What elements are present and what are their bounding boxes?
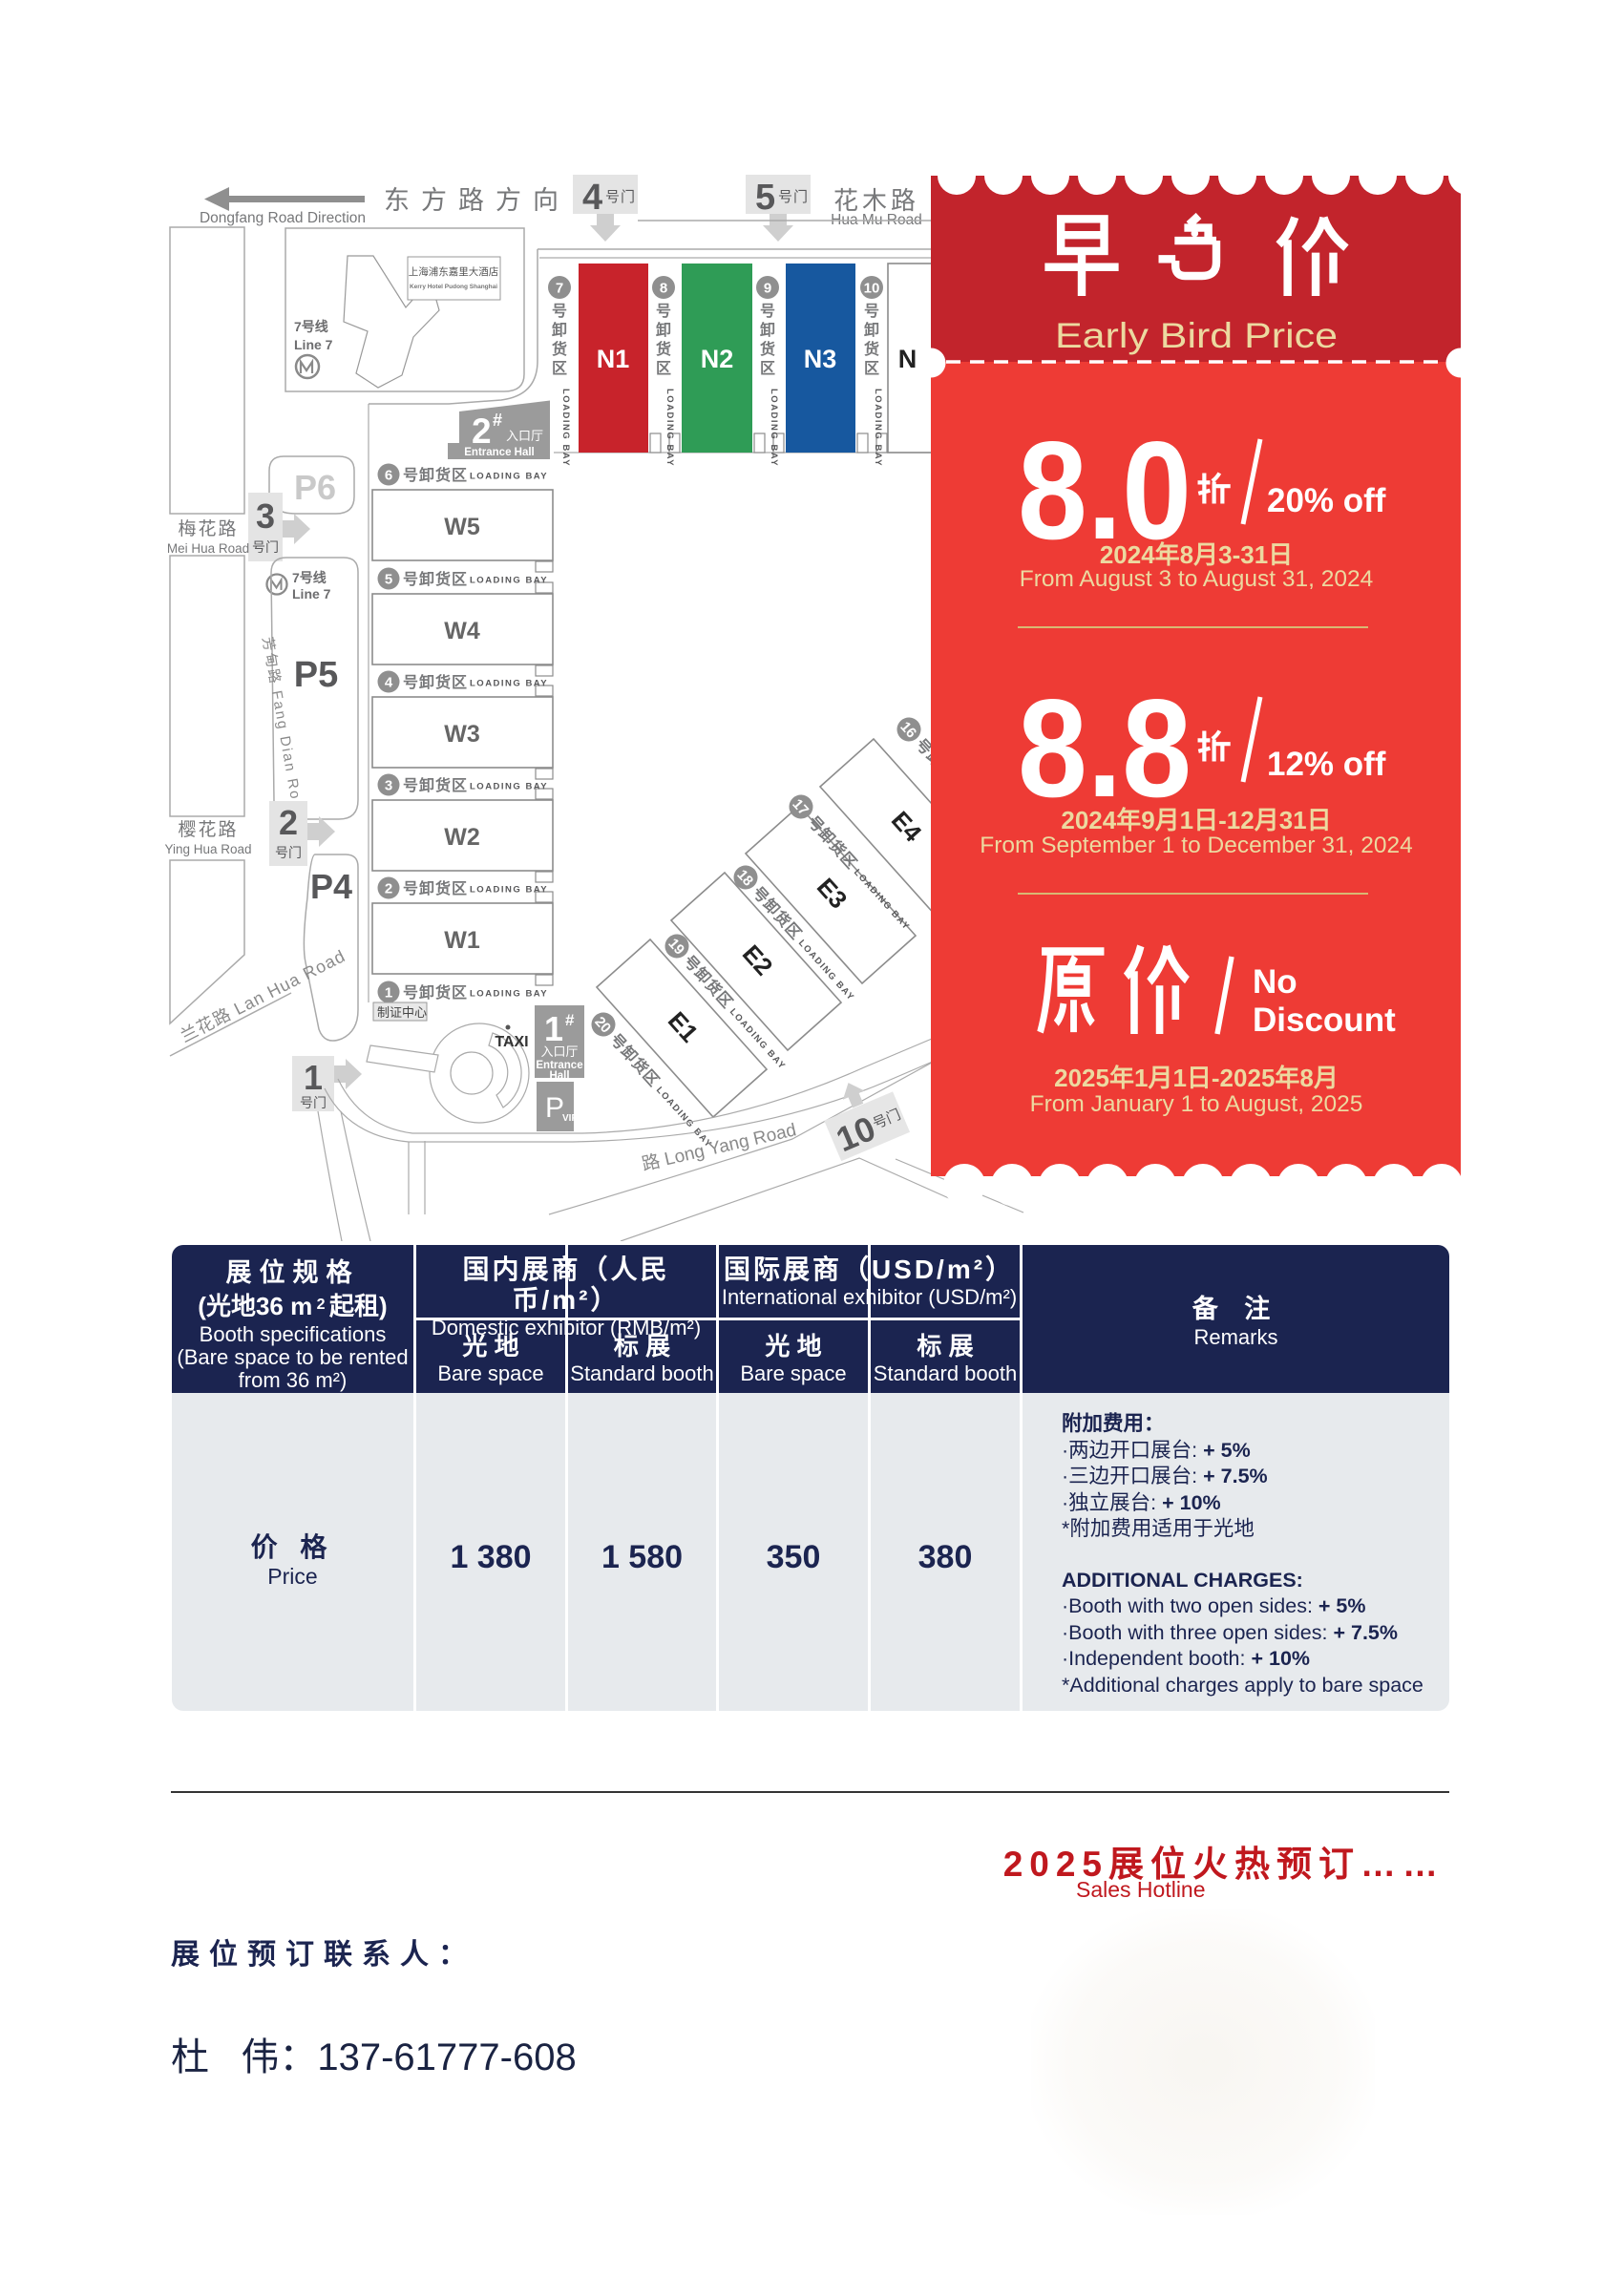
svg-text:N3: N3: [804, 345, 837, 373]
svg-text:4: 4: [385, 675, 393, 691]
svg-text:号卸货区: 号卸货区: [403, 466, 468, 484]
svg-text:7: 7: [556, 281, 563, 297]
svg-text:From September 1 to December 3: From September 1 to December 31, 2024: [980, 833, 1412, 858]
svg-text:7号线: 7号线: [294, 319, 328, 334]
svg-text:卸: 卸: [552, 321, 567, 339]
svg-text:LOADING BAY: LOADING BAY: [664, 389, 675, 467]
svg-text:区: 区: [760, 360, 775, 377]
svg-text:From January 1 to August, 2025: From January 1 to August, 2025: [1030, 1091, 1363, 1117]
svg-text:Mei Hua Road: Mei Hua Road: [167, 541, 249, 556]
svg-text:#: #: [493, 411, 502, 430]
svg-text:P: P: [545, 1092, 564, 1124]
svg-text:Discount: Discount: [1253, 1002, 1396, 1039]
svg-text:5: 5: [385, 572, 392, 588]
svg-text:LOADING BAY: LOADING BAY: [470, 576, 548, 586]
svg-text:LOADING BAY: LOADING BAY: [470, 989, 548, 1000]
svg-text:3: 3: [385, 778, 392, 794]
svg-text:号卸货区: 号卸货区: [403, 983, 468, 1002]
svg-text:2: 2: [472, 411, 492, 451]
svg-text:P4: P4: [310, 867, 352, 906]
svg-text:货: 货: [864, 340, 879, 358]
svg-text:P6: P6: [294, 468, 336, 507]
svg-text:LOADING BAY: LOADING BAY: [560, 389, 571, 467]
svg-text:号卸货区: 号卸货区: [403, 673, 468, 691]
svg-text:区: 区: [864, 360, 879, 377]
svg-text:Entrance Hall: Entrance Hall: [464, 447, 535, 458]
svg-text:N1: N1: [597, 345, 630, 373]
svg-text:Dongfang Road Direction: Dongfang Road Direction: [200, 210, 366, 226]
svg-text:10: 10: [864, 281, 880, 297]
svg-text:3: 3: [256, 496, 275, 536]
svg-text:LOADING BAY: LOADING BAY: [470, 885, 548, 896]
svg-text:号卸货区: 号卸货区: [403, 879, 468, 897]
svg-text:货: 货: [760, 340, 775, 358]
svg-text:号: 号: [864, 303, 879, 320]
svg-text:号卸货区: 号卸货区: [403, 776, 468, 794]
svg-text:LOADING BAY: LOADING BAY: [470, 472, 548, 482]
svg-text:5: 5: [755, 178, 775, 218]
svg-text:区: 区: [552, 360, 567, 377]
svg-text:号: 号: [656, 303, 671, 320]
svg-text:2: 2: [279, 803, 298, 842]
svg-text:号门: 号门: [778, 189, 809, 205]
svg-text:货: 货: [552, 340, 567, 358]
svg-text:入口厅: 入口厅: [540, 1044, 578, 1059]
svg-text:Kerry Hotel Pudong Shanghai: Kerry Hotel Pudong Shanghai: [410, 284, 497, 290]
svg-text:From August 3 to August 31, 20: From August 3 to August 31, 2024: [1020, 566, 1373, 592]
svg-text:4: 4: [582, 178, 602, 218]
svg-text:VIP: VIP: [562, 1113, 578, 1124]
svg-text:东方路方向: 东方路方向: [384, 186, 570, 215]
svg-text:LOADING BAY: LOADING BAY: [470, 679, 548, 689]
svg-text:N2: N2: [701, 345, 734, 373]
svg-text:花木路: 花木路: [833, 186, 919, 215]
svg-text:P5: P5: [294, 655, 338, 695]
svg-text:货: 货: [656, 340, 671, 358]
svg-text:W5: W5: [444, 514, 480, 540]
svg-text:1: 1: [385, 985, 392, 1002]
svg-text:TAXI: TAXI: [495, 1034, 528, 1050]
svg-text:9: 9: [764, 281, 771, 297]
svg-text:1: 1: [304, 1058, 323, 1097]
svg-text:LOADING BAY: LOADING BAY: [470, 782, 548, 792]
svg-text:W1: W1: [444, 927, 480, 954]
svg-text:Hall: Hall: [549, 1070, 569, 1082]
svg-text:Line 7: Line 7: [294, 337, 333, 352]
svg-text:号卸货区: 号卸货区: [403, 570, 468, 588]
svg-text:W3: W3: [444, 721, 480, 748]
svg-text:2024年8月3-31日: 2024年8月3-31日: [1100, 540, 1293, 569]
svg-text:Early Bird Price: Early Bird Price: [1055, 316, 1338, 355]
svg-text:W4: W4: [444, 618, 480, 644]
svg-text:2024年9月1日-12月31日: 2024年9月1日-12月31日: [1061, 806, 1331, 834]
svg-text:7号线: 7号线: [292, 570, 327, 585]
svg-text:入口厅: 入口厅: [506, 429, 543, 443]
svg-text:No: No: [1253, 963, 1297, 1001]
svg-text:8: 8: [660, 281, 667, 297]
svg-text:LOADING BAY: LOADING BAY: [873, 389, 883, 467]
svg-text:2: 2: [385, 881, 392, 897]
svg-text:号: 号: [760, 303, 775, 320]
svg-text:卸: 卸: [760, 321, 775, 339]
svg-text:1: 1: [544, 1009, 563, 1048]
svg-text:卸: 卸: [656, 321, 671, 339]
svg-text:W2: W2: [444, 824, 480, 851]
svg-text:8.8: 8.8: [1018, 670, 1192, 826]
svg-text:梅花路: 梅花路: [178, 518, 238, 539]
svg-text:区: 区: [656, 360, 671, 377]
svg-text:号门: 号门: [275, 845, 302, 860]
svg-text:号门: 号门: [605, 189, 636, 205]
svg-text:2025年1月1日-2025年8月: 2025年1月1日-2025年8月: [1054, 1064, 1339, 1092]
svg-text:Line 7: Line 7: [292, 586, 331, 601]
svg-text:LOADING BAY: LOADING BAY: [769, 389, 779, 467]
svg-text:樱花路: 樱花路: [178, 819, 238, 840]
svg-text:12% off: 12% off: [1267, 746, 1386, 783]
svg-text:#: #: [565, 1011, 575, 1029]
svg-text:6: 6: [385, 468, 392, 484]
svg-text:上海浦东嘉里大酒店: 上海浦东嘉里大酒店: [409, 265, 499, 278]
svg-text:兰花路 Lan Hua Road: 兰花路 Lan Hua Road: [178, 946, 348, 1046]
svg-text:路 Long Yang Road: 路 Long Yang Road: [640, 1119, 798, 1175]
svg-text:制证中心: 制证中心: [377, 1005, 427, 1020]
svg-text:号: 号: [552, 303, 567, 320]
svg-text:20% off: 20% off: [1267, 482, 1386, 519]
svg-text:卸: 卸: [864, 321, 879, 339]
svg-text:号门: 号门: [300, 1095, 327, 1110]
svg-text:号门: 号门: [252, 539, 279, 555]
svg-text:Ying Hua Road: Ying Hua Road: [164, 842, 251, 856]
